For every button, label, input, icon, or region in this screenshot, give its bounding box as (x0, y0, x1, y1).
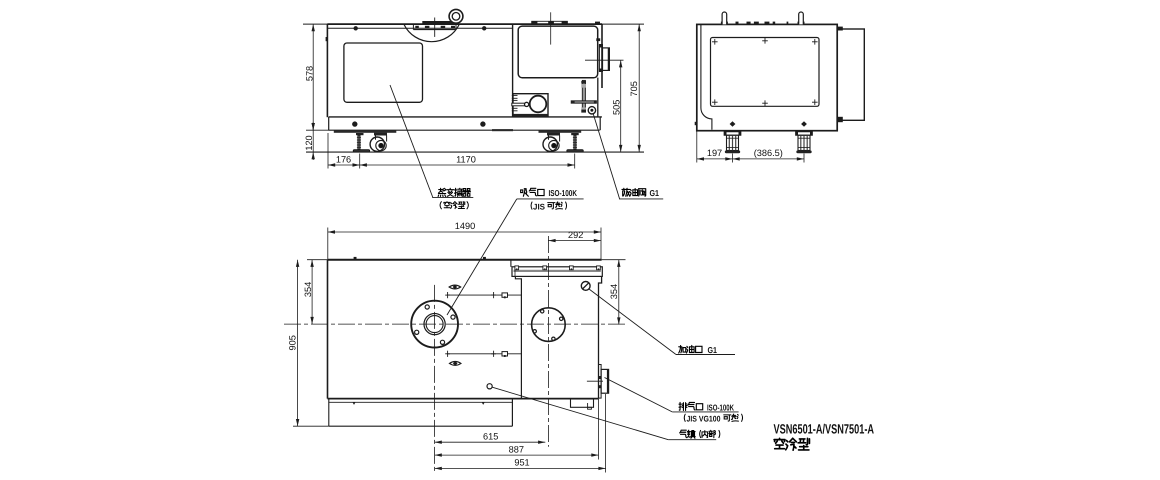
svg-text:615: 615 (483, 431, 498, 441)
svg-text:ISO-100K: ISO-100K (707, 402, 735, 412)
svg-text:705: 705 (629, 81, 639, 96)
svg-text:292: 292 (568, 230, 583, 240)
svg-text:VSN6501-A/VSN7501-A: VSN6501-A/VSN7501-A (774, 421, 875, 436)
svg-text:578: 578 (305, 66, 315, 81)
svg-text:505: 505 (612, 100, 622, 115)
svg-text:354: 354 (609, 284, 619, 299)
svg-text:(386.5): (386.5) (754, 148, 783, 158)
svg-text:ISO-100K: ISO-100K (549, 188, 578, 198)
svg-text:354: 354 (303, 282, 313, 297)
svg-text:JIS VG100: JIS VG100 (687, 415, 721, 424)
svg-text:G1: G1 (708, 345, 718, 355)
svg-text:G1: G1 (650, 188, 660, 198)
svg-text:1170: 1170 (456, 154, 476, 164)
svg-text:887: 887 (509, 444, 524, 454)
svg-text:951: 951 (514, 458, 529, 468)
svg-text:905: 905 (287, 335, 297, 350)
svg-text:JIS: JIS (533, 202, 546, 211)
svg-text:197: 197 (707, 148, 722, 158)
svg-text:176: 176 (336, 154, 351, 164)
svg-text:120: 120 (304, 135, 314, 150)
svg-text:1490: 1490 (455, 221, 475, 231)
